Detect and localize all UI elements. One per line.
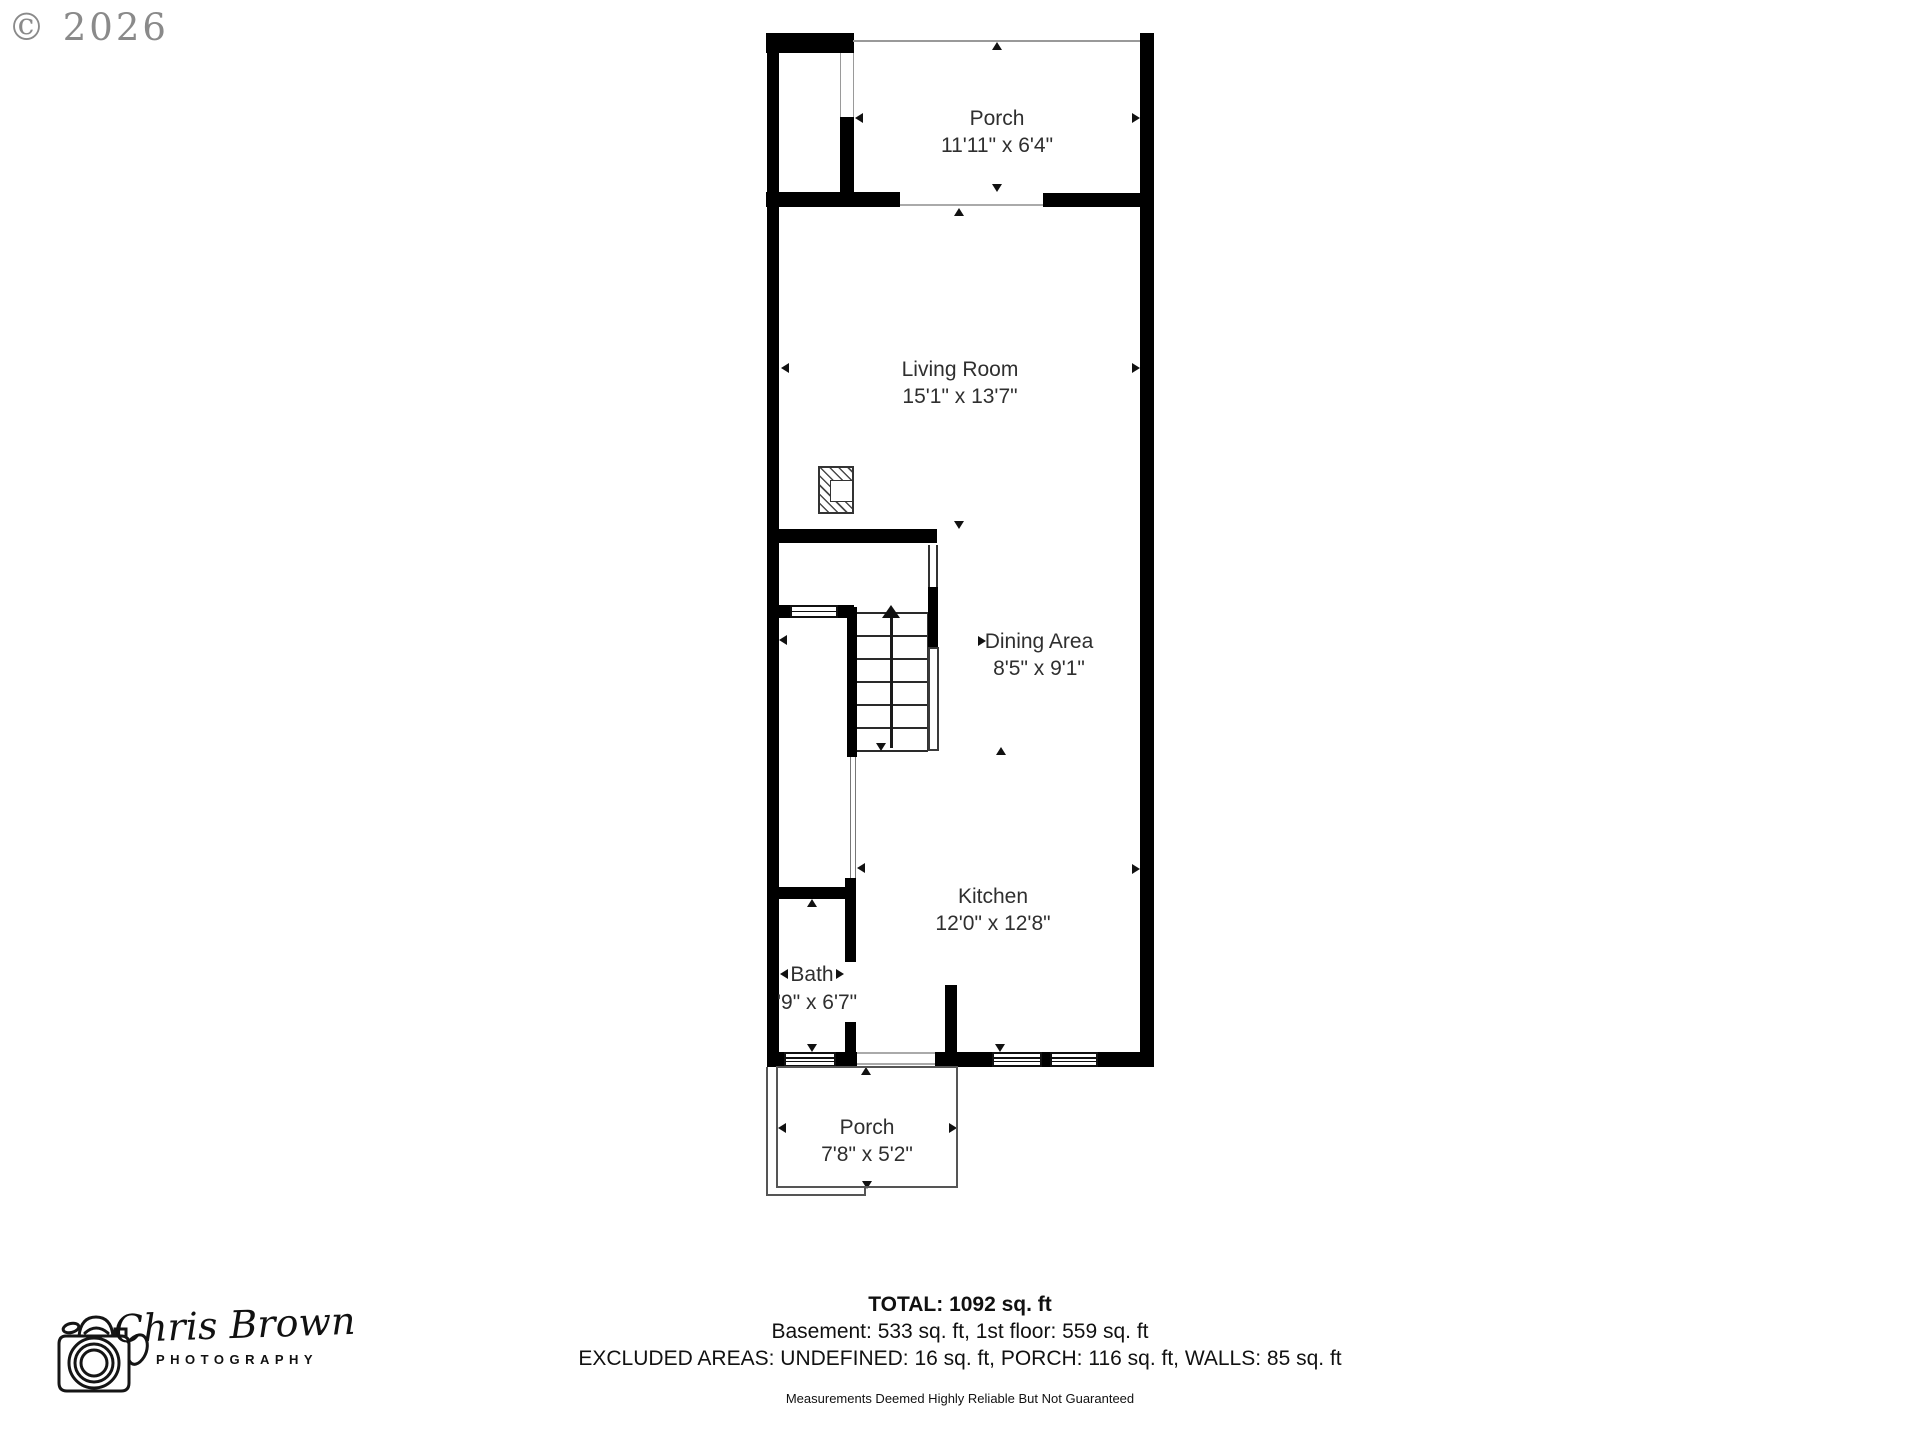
dim-arrow [992, 184, 1002, 192]
wall-bottom-b [836, 1052, 857, 1067]
room-label-bath: Bath [762, 961, 862, 988]
wall-top-left [766, 33, 854, 53]
room-label-kitchen: Kitchen 12'0" x 12'8" [893, 883, 1093, 937]
dim-arrow [855, 113, 863, 123]
wall-bottom-e [1098, 1052, 1154, 1067]
dim-arrow [807, 1044, 817, 1052]
room-dims: 7'8" x 5'2" [767, 1141, 967, 1168]
room-name: Dining Area [939, 628, 1139, 655]
wall-stub-right [838, 605, 854, 618]
partition-line-b [855, 757, 856, 878]
logo-subtitle: PHOTOGRAPHY [156, 1352, 318, 1367]
window-interior-stair [790, 605, 838, 618]
staircase-rail [928, 647, 939, 751]
dim-arrow [1132, 864, 1140, 874]
window-entry [840, 53, 854, 117]
room-dims: 12'0" x 12'8" [893, 910, 1093, 937]
dim-arrow [996, 747, 1006, 755]
threshold-porch-door-top [857, 1052, 935, 1054]
room-name: Kitchen [893, 883, 1093, 910]
room-name: Living Room [860, 356, 1060, 383]
porch-step-stub [864, 1188, 866, 1196]
dim-arrow [954, 521, 964, 529]
wall-porch-bottom-right [1043, 193, 1154, 207]
room-label-porch-bottom: Porch 7'8" x 5'2" [767, 1114, 967, 1168]
dim-arrow [1132, 363, 1140, 373]
floor-plan-page: © 2026 [0, 0, 1920, 1440]
stair-direction-arrow-icon [882, 605, 900, 618]
stair-direction-line [890, 618, 893, 748]
wall-bottom-a [767, 1052, 784, 1067]
dim-arrow [992, 42, 1002, 50]
summary-disclaimer: Measurements Deemed Highly Reliable But … [0, 1391, 1920, 1406]
room-dims: 8'5" x 9'1" [939, 655, 1139, 682]
room-label-living-room: Living Room 15'1" x 13'7" [860, 356, 1060, 410]
room-label-dining-area: Dining Area 8'5" x 9'1" [939, 628, 1139, 682]
window-stairwell [928, 545, 938, 587]
room-name: Porch [767, 1114, 967, 1141]
fireplace-chimney [818, 466, 854, 514]
room-dims: 11'11" x 6'4" [897, 132, 1097, 159]
dim-arrow [954, 208, 964, 216]
wall-bottom-d [1042, 1052, 1050, 1067]
threshold-living [900, 204, 1043, 206]
wall-bottom-c [935, 1052, 992, 1067]
wall-stair-left [847, 607, 857, 757]
copyright-watermark: © 2026 [8, 6, 169, 49]
wall-stairwell-v [928, 587, 938, 647]
room-label-porch-top: Porch 11'11" x 6'4" [897, 105, 1097, 159]
dim-arrow [1132, 113, 1140, 123]
wall-bath-right-upper [845, 878, 856, 962]
wall-entry-bottom [766, 192, 900, 207]
dim-arrow [807, 899, 817, 907]
window-kitchen-1 [992, 1052, 1042, 1067]
wall-stub-left [778, 605, 790, 618]
partition-line-a [850, 757, 851, 878]
porch-step-bottom [766, 1194, 866, 1196]
dim-arrow [779, 635, 787, 645]
room-name: Porch [897, 105, 1097, 132]
wall-bath-top [767, 887, 847, 899]
dim-arrow [781, 363, 789, 373]
room-dims: 15'1" x 13'7" [860, 383, 1060, 410]
room-name: Bath [762, 961, 862, 988]
wall-entry-inner-v [840, 117, 854, 203]
window-kitchen-2 [1050, 1052, 1098, 1067]
room-dims-bath: '9" x 6'7" [777, 989, 857, 1016]
threshold-porch-door-bottom [857, 1063, 935, 1065]
chimney-flue [830, 480, 853, 502]
logo-name: Chris Brown [113, 1299, 356, 1351]
wall-left-exterior [767, 33, 779, 1067]
window-bath [784, 1052, 836, 1067]
dim-arrow [995, 1044, 1005, 1052]
dim-arrow [857, 863, 865, 873]
dim-arrow [876, 743, 886, 751]
wall-right-exterior [1140, 33, 1154, 1067]
wall-living-bottom [767, 529, 937, 543]
